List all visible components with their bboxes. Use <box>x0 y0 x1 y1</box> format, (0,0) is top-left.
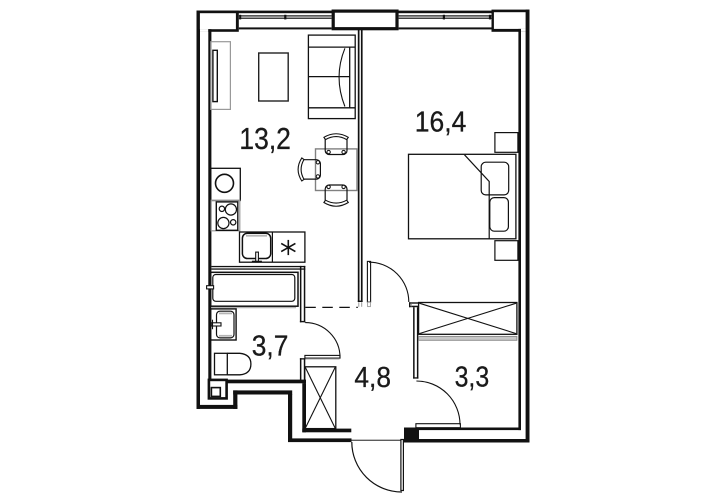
svg-text:3,7: 3,7 <box>252 330 289 362</box>
svg-text:16,4: 16,4 <box>415 107 467 139</box>
svg-text:3,3: 3,3 <box>455 362 490 394</box>
svg-text:13,2: 13,2 <box>239 121 291 156</box>
svg-text:4,8: 4,8 <box>354 362 391 394</box>
